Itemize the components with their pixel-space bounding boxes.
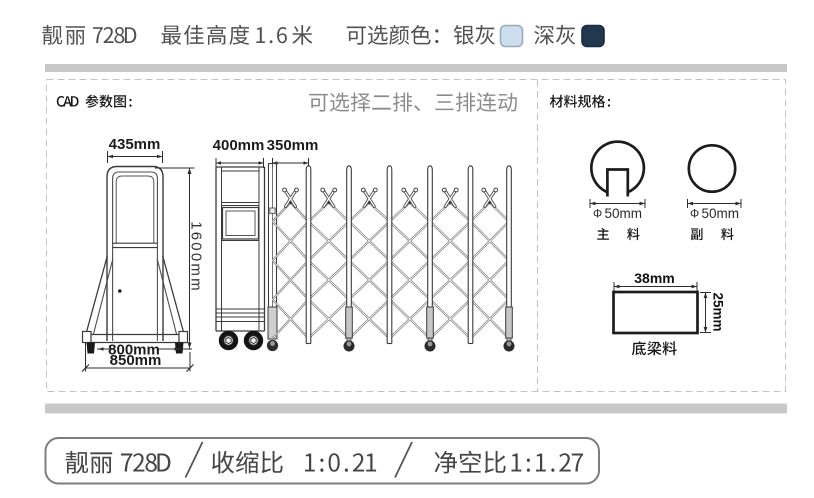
svg-text:850mm: 850mm	[110, 352, 162, 369]
svg-text:400mm: 400mm	[213, 137, 265, 154]
svg-text:435mm: 435mm	[109, 136, 161, 153]
svg-text:350mm: 350mm	[267, 137, 319, 154]
svg-text:50mm: 50mm	[702, 206, 740, 221]
svg-text:38mm: 38mm	[634, 270, 674, 286]
svg-text:Φ: Φ	[593, 209, 602, 221]
svg-text:25mm: 25mm	[711, 292, 726, 331]
svg-text:Φ: Φ	[690, 209, 699, 221]
svg-text:50mm: 50mm	[605, 206, 643, 221]
svg-text:1600mm: 1600mm	[188, 221, 205, 293]
